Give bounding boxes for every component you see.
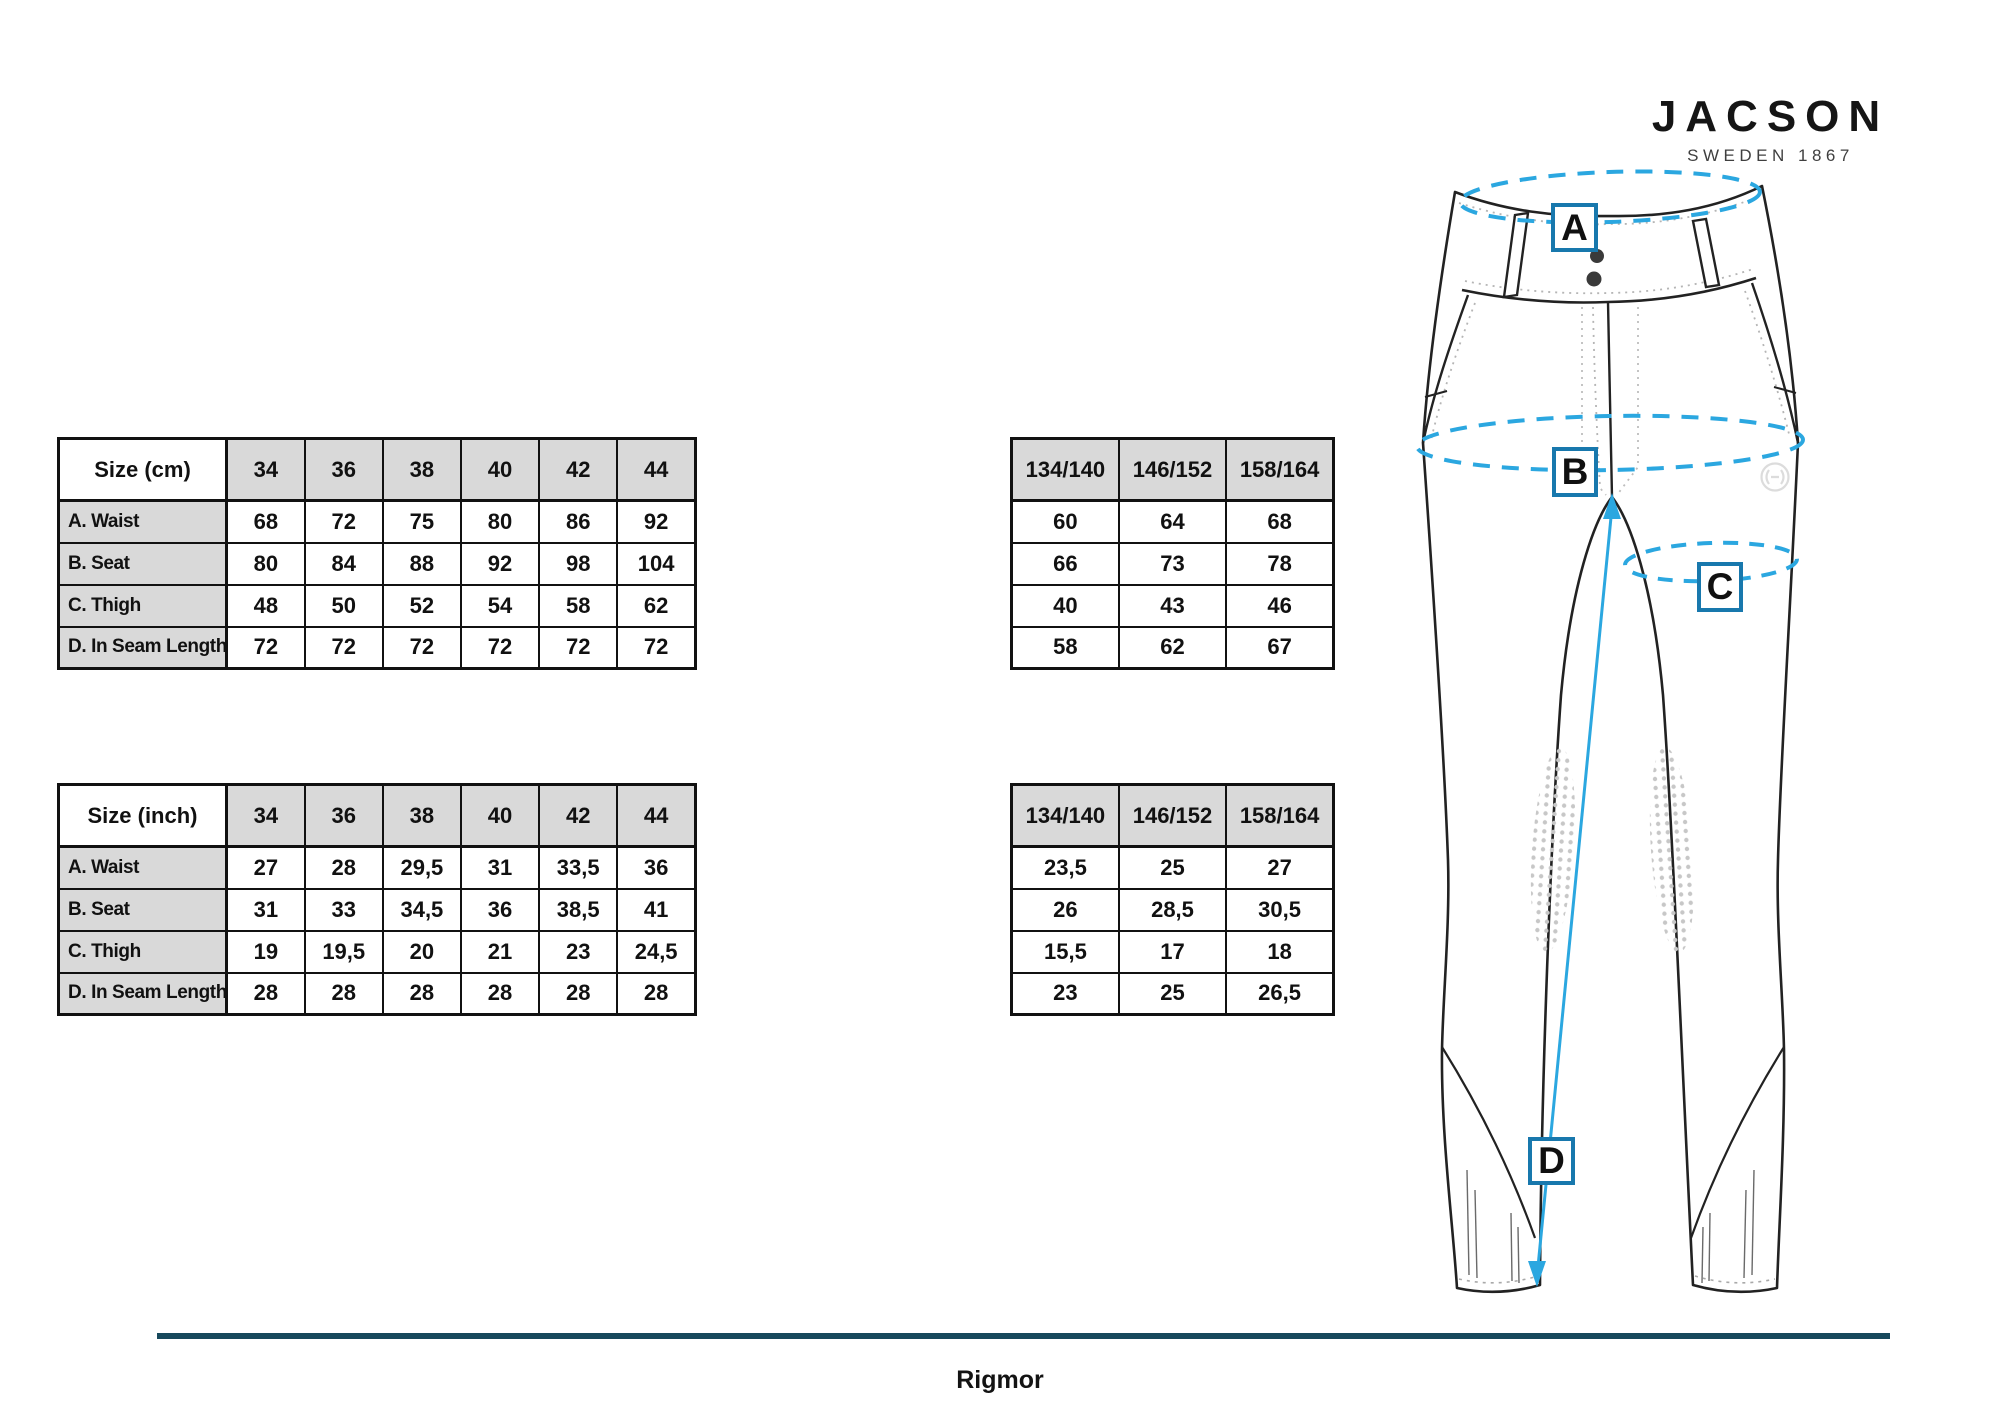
size-value: 72: [305, 501, 383, 543]
size-value: 21: [461, 931, 539, 973]
breeches-technical-drawing: [1395, 135, 1865, 1350]
size-value: 66: [1012, 543, 1119, 585]
table-row: 232526,5: [1012, 973, 1334, 1015]
size-value: 72: [227, 627, 305, 669]
size-value: 28: [617, 973, 695, 1015]
table-row: A. Waist272829,53133,536: [59, 847, 696, 889]
size-value: 28: [539, 973, 617, 1015]
size-value: 25: [1119, 973, 1226, 1015]
size-value: 52: [383, 585, 461, 627]
size-value: 104: [617, 543, 695, 585]
size-column-header: 158/164: [1226, 439, 1333, 501]
size-value: 54: [461, 585, 539, 627]
header-row: 134/140146/152158/164: [1012, 785, 1334, 847]
size-value: 31: [461, 847, 539, 889]
size-table-adult-inch: Size (inch)343638404244A. Waist272829,53…: [57, 783, 697, 1016]
size-value: 72: [383, 627, 461, 669]
size-value: 18: [1226, 931, 1333, 973]
size-value: 58: [539, 585, 617, 627]
table-row: 15,51718: [1012, 931, 1334, 973]
table-row: C. Thigh1919,520212324,5: [59, 931, 696, 973]
marker-b-box: B: [1552, 447, 1598, 497]
table-title: Size (inch): [59, 785, 227, 847]
table-row: B. Seat8084889298104: [59, 543, 696, 585]
size-value: 80: [461, 501, 539, 543]
size-value: 92: [461, 543, 539, 585]
size-value: 75: [383, 501, 461, 543]
size-column-header: 42: [539, 439, 617, 501]
size-value: 40: [1012, 585, 1119, 627]
size-value: 17: [1119, 931, 1226, 973]
size-value: 24,5: [617, 931, 695, 973]
size-column-header: 38: [383, 439, 461, 501]
size-column-header: 44: [617, 439, 695, 501]
marker-c-box: C: [1697, 562, 1743, 612]
size-value: 27: [227, 847, 305, 889]
size-value: 36: [461, 889, 539, 931]
header-row: Size (cm)343638404244: [59, 439, 696, 501]
size-column-header: 36: [305, 785, 383, 847]
size-value: 62: [617, 585, 695, 627]
product-name: Rigmor: [0, 1366, 2000, 1395]
size-value: 48: [227, 585, 305, 627]
size-table-adult-cm: Size (cm)343638404244A. Waist68727580869…: [57, 437, 697, 670]
size-value: 50: [305, 585, 383, 627]
table-row: C. Thigh485052545862: [59, 585, 696, 627]
size-value: 43: [1119, 585, 1226, 627]
table-row: 23,52527: [1012, 847, 1334, 889]
size-column-header: 38: [383, 785, 461, 847]
table-row: 586267: [1012, 627, 1334, 669]
size-value: 19,5: [305, 931, 383, 973]
size-value: 41: [617, 889, 695, 931]
waist-button-bottom: [1587, 272, 1602, 287]
size-value: 33,5: [539, 847, 617, 889]
size-value: 34,5: [383, 889, 461, 931]
size-value: 62: [1119, 627, 1226, 669]
size-value: 29,5: [383, 847, 461, 889]
size-value: 86: [539, 501, 617, 543]
size-column-header: 40: [461, 439, 539, 501]
table-row: B. Seat313334,53638,541: [59, 889, 696, 931]
measurement-row-label: C. Thigh: [59, 585, 227, 627]
size-value: 19: [227, 931, 305, 973]
size-value: 68: [227, 501, 305, 543]
size-value: 23,5: [1012, 847, 1119, 889]
size-column-header: 146/152: [1119, 785, 1226, 847]
size-table-kids-inch: 134/140146/152158/16423,525272628,530,51…: [1010, 783, 1335, 1016]
size-value: 30,5: [1226, 889, 1333, 931]
table-row: 667378: [1012, 543, 1334, 585]
size-column-header: 34: [227, 785, 305, 847]
size-value: 73: [1119, 543, 1226, 585]
measurement-row-label: B. Seat: [59, 889, 227, 931]
measurement-row-label: B. Seat: [59, 543, 227, 585]
measurement-row-label: A. Waist: [59, 501, 227, 543]
size-column-header: 36: [305, 439, 383, 501]
header-row: 134/140146/152158/164: [1012, 439, 1334, 501]
size-value: 60: [1012, 501, 1119, 543]
size-column-header: 146/152: [1119, 439, 1226, 501]
size-table-kids-cm: 134/140146/152158/1646064686673784043465…: [1010, 437, 1335, 670]
size-value: 31: [227, 889, 305, 931]
size-value: 72: [539, 627, 617, 669]
divider-rule: [157, 1333, 1890, 1339]
measurement-row-label: C. Thigh: [59, 931, 227, 973]
size-value: 92: [617, 501, 695, 543]
marker-a-box: A: [1551, 203, 1598, 252]
size-column-header: 134/140: [1012, 785, 1119, 847]
size-value: 25: [1119, 847, 1226, 889]
size-value: 26,5: [1226, 973, 1333, 1015]
size-value: 15,5: [1012, 931, 1119, 973]
size-value: 38,5: [539, 889, 617, 931]
size-column-header: 40: [461, 785, 539, 847]
size-value: 28: [227, 973, 305, 1015]
size-value: 23: [539, 931, 617, 973]
size-value: 26: [1012, 889, 1119, 931]
table-title: Size (cm): [59, 439, 227, 501]
size-value: 64: [1119, 501, 1226, 543]
size-value: 72: [461, 627, 539, 669]
size-value: 80: [227, 543, 305, 585]
table-row: D. In Seam Length282828282828: [59, 973, 696, 1015]
size-value: 68: [1226, 501, 1333, 543]
size-value: 28,5: [1119, 889, 1226, 931]
measurement-row-label: D. In Seam Length: [59, 973, 227, 1015]
size-value: 36: [617, 847, 695, 889]
table-row: D. In Seam Length727272727272: [59, 627, 696, 669]
size-value: 84: [305, 543, 383, 585]
size-value: 58: [1012, 627, 1119, 669]
size-column-header: 158/164: [1226, 785, 1333, 847]
breeches-outline: [1423, 186, 1798, 1292]
measurement-row-label: D. In Seam Length: [59, 627, 227, 669]
size-value: 98: [539, 543, 617, 585]
size-column-header: 34: [227, 439, 305, 501]
size-value: 78: [1226, 543, 1333, 585]
size-value: 28: [461, 973, 539, 1015]
size-column-header: 44: [617, 785, 695, 847]
size-value: 28: [305, 973, 383, 1015]
size-value: 33: [305, 889, 383, 931]
breeches-measurement-diagram: A B C D: [1395, 135, 1865, 1350]
size-value: 46: [1226, 585, 1333, 627]
size-column-header: 134/140: [1012, 439, 1119, 501]
table-row: A. Waist687275808692: [59, 501, 696, 543]
header-row: Size (inch)343638404244: [59, 785, 696, 847]
size-value: 28: [305, 847, 383, 889]
measurement-row-label: A. Waist: [59, 847, 227, 889]
size-value: 20: [383, 931, 461, 973]
size-value: 72: [617, 627, 695, 669]
size-column-header: 42: [539, 785, 617, 847]
size-value: 72: [305, 627, 383, 669]
table-row: 2628,530,5: [1012, 889, 1334, 931]
size-value: 27: [1226, 847, 1333, 889]
table-row: 404346: [1012, 585, 1334, 627]
marker-d-box: D: [1528, 1137, 1575, 1185]
table-row: 606468: [1012, 501, 1334, 543]
size-value: 28: [383, 973, 461, 1015]
size-value: 23: [1012, 973, 1119, 1015]
size-value: 88: [383, 543, 461, 585]
size-value: 67: [1226, 627, 1333, 669]
